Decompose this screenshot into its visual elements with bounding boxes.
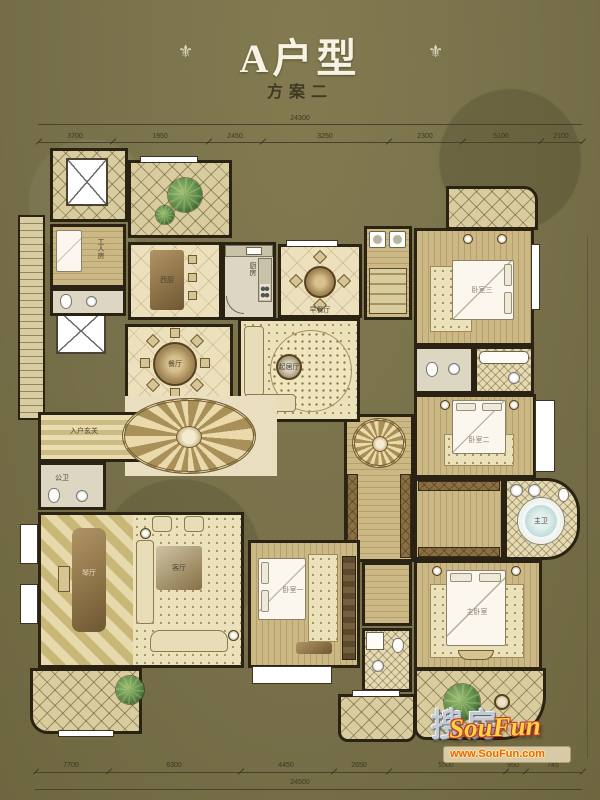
rug — [308, 554, 338, 642]
room-label-master: 主卧室 — [467, 607, 488, 617]
lamp-icon — [509, 400, 519, 410]
pillow — [450, 573, 472, 582]
plant-icon — [168, 178, 202, 212]
balcony — [338, 694, 416, 742]
toilet-icon — [392, 638, 404, 653]
room-label-piano: 琴厅 — [82, 568, 96, 578]
page-title: A户型 — [0, 26, 600, 84]
bay-window — [20, 524, 38, 564]
bench — [58, 566, 70, 592]
armchair — [152, 516, 172, 532]
sofa — [150, 630, 228, 652]
sink-icon — [508, 372, 520, 384]
lamp-icon — [432, 566, 442, 576]
room-label-family: 起居厅 — [279, 362, 300, 372]
sink-icon — [372, 660, 384, 672]
room-label-guest-bath: 公卫 — [55, 473, 69, 483]
watermark: 搜房 SouFun www.SouFun.com — [425, 700, 595, 764]
washer-icon — [369, 231, 386, 248]
pillow — [456, 403, 476, 411]
corridor — [362, 562, 412, 626]
room-label-kitchen: 厨房 — [247, 262, 257, 276]
toilet-icon — [60, 294, 72, 309]
room-label-master-bath: 主卫 — [534, 516, 548, 526]
plant-icon — [156, 206, 174, 224]
watermark-url-strip: www.SouFun.com — [443, 746, 571, 763]
lamp-icon — [511, 566, 521, 576]
dim-value: 2300 — [417, 133, 433, 140]
watermark-logo: SouFun — [448, 710, 541, 744]
dim-line-right — [587, 236, 588, 758]
sink-icon — [86, 296, 97, 307]
bench — [458, 650, 494, 660]
dim-tick — [580, 138, 586, 144]
elevator-icon — [66, 158, 108, 206]
window — [140, 156, 198, 163]
bed — [56, 230, 82, 272]
dim-value: 4450 — [278, 762, 294, 769]
window — [531, 244, 540, 310]
room-bath — [414, 346, 474, 394]
sink-icon — [528, 484, 541, 497]
watermark-url: www.SouFun.com — [450, 748, 545, 760]
shower — [366, 632, 384, 650]
room-label-breakfast: 早餐厅 — [310, 305, 331, 315]
piano — [72, 528, 106, 632]
sofa — [244, 326, 264, 396]
closet-cabinet — [418, 481, 500, 491]
room-label-foyer: 入户玄关 — [70, 426, 98, 436]
dim-value: 2100 — [553, 133, 569, 140]
room-label-west-kitchen: 西厨 — [160, 275, 174, 285]
toilet-icon — [558, 488, 569, 502]
toilet-icon — [426, 362, 438, 377]
window — [286, 240, 338, 247]
closet-cabinet — [418, 547, 500, 557]
dim-value: 3250 — [317, 133, 333, 140]
dim-value: 3700 — [67, 133, 83, 140]
dim-line-bottom-segments — [35, 772, 582, 773]
chair — [188, 291, 197, 300]
pillow — [482, 403, 502, 411]
floorplan-page: ⚜ A户型 ⚜ 方案二 24300 3700 1950 2450 3250 23… — [0, 0, 600, 800]
dim-value: 2650 — [351, 762, 367, 769]
dim-value: 5100 — [493, 133, 509, 140]
room-label-bedroom1: 卧室一 — [283, 585, 304, 595]
dresser — [296, 642, 332, 654]
pillow — [504, 264, 512, 286]
dim-line-top-total — [38, 124, 582, 125]
chair — [140, 358, 150, 368]
room-label-living: 客厅 — [172, 563, 186, 573]
chair — [200, 358, 210, 368]
sink-icon — [76, 490, 88, 502]
chair — [188, 273, 197, 282]
lamp-icon — [440, 400, 450, 410]
page-subtitle: 方案二 — [0, 78, 600, 102]
breakfast-table — [304, 266, 336, 298]
bay-window — [20, 584, 38, 624]
dim-line-bottom-total — [35, 789, 582, 790]
medallion-core — [176, 426, 202, 448]
dim-tick — [580, 768, 586, 774]
window — [352, 690, 400, 697]
sink-icon — [448, 363, 460, 375]
bay-window — [252, 666, 332, 684]
dim-value: 7700 — [63, 762, 79, 769]
wardrobe — [342, 556, 356, 660]
bathtub-icon — [479, 351, 529, 364]
chair — [188, 255, 197, 264]
flourish-icon: ⚜ — [428, 42, 443, 62]
pillow — [261, 562, 269, 584]
balcony-bedroom3 — [446, 186, 538, 230]
lamp-icon — [463, 234, 473, 244]
closet-cabinet — [400, 474, 411, 558]
washer-icon — [389, 231, 406, 248]
lamp-icon — [497, 234, 507, 244]
chair — [170, 328, 180, 338]
room-label-bedroom2: 卧室二 — [469, 435, 490, 445]
stove-icon — [260, 284, 270, 300]
sink-icon — [246, 247, 262, 255]
sink-icon — [510, 484, 523, 497]
window — [58, 730, 114, 737]
dim-value: 6300 — [166, 762, 182, 769]
dim-value: 24500 — [290, 779, 309, 786]
dim-value: 1950 — [152, 133, 168, 140]
lamp-icon — [140, 528, 151, 539]
medallion-core — [372, 436, 388, 452]
room-guest-bath — [38, 462, 106, 510]
pillow — [261, 590, 269, 612]
stairs — [18, 215, 45, 420]
dim-value: 24300 — [290, 115, 309, 122]
toilet-icon — [48, 488, 60, 503]
pillow — [479, 573, 501, 582]
dim-line-top-segments — [38, 142, 582, 143]
pillow — [504, 292, 512, 314]
room-label-bedroom3: 卧室三 — [472, 285, 493, 295]
bay-window — [535, 400, 555, 472]
plant-icon — [116, 676, 144, 704]
lamp-icon — [228, 630, 239, 641]
room-label-dining: 餐厅 — [168, 359, 182, 369]
armchair — [184, 516, 204, 532]
shelves — [369, 268, 407, 314]
room-label-worker: 工人房 — [95, 238, 105, 259]
dim-value: 2450 — [227, 133, 243, 140]
sofa — [136, 540, 154, 624]
